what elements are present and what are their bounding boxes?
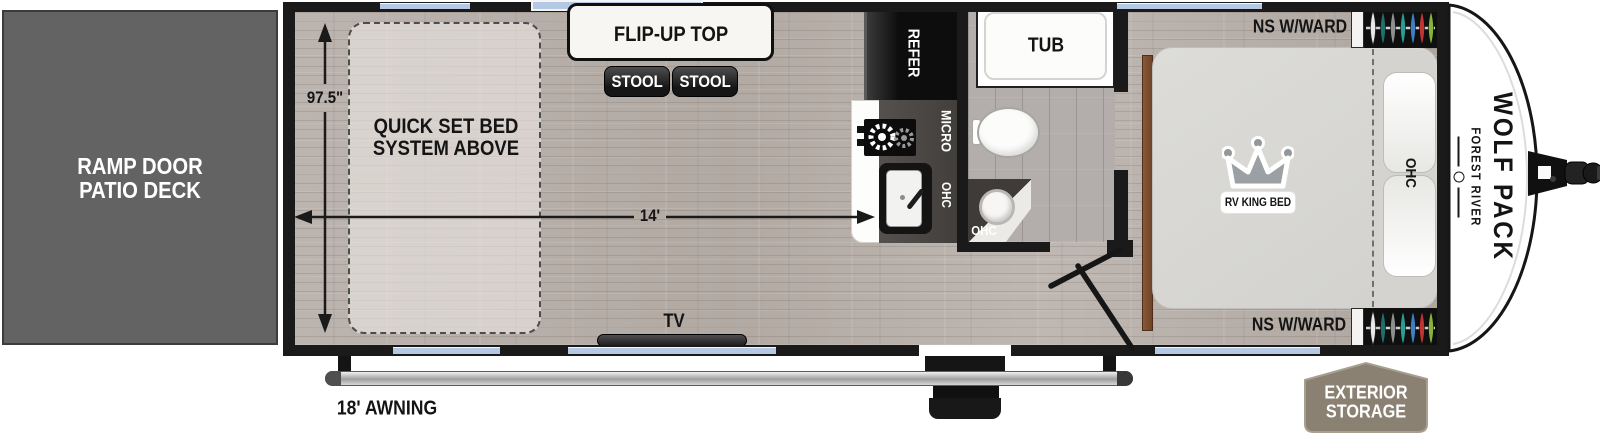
awning-bracket-right	[1103, 356, 1116, 372]
width-dimension-label: 97.5"	[307, 89, 343, 107]
king-bed-label: RV KING BED	[1225, 196, 1291, 208]
ramp-door-label: RAMP DOOR PATIO DECK	[77, 153, 203, 201]
king-bed-label-pill: RV KING BED	[1221, 192, 1295, 213]
stool-badge-2: STOOL	[672, 66, 738, 97]
top-window-1	[380, 3, 470, 9]
flip-up-top-box: FLIP-UP TOP	[567, 3, 774, 61]
trailer-right-wall	[1437, 2, 1449, 356]
vanity-sink-bowl	[979, 189, 1015, 225]
burner-icons	[864, 119, 916, 156]
bathtub: TUB	[976, 4, 1115, 88]
ramp-door-patio-deck: RAMP DOOR PATIO DECK	[2, 10, 278, 345]
quick-set-bed-area	[348, 22, 541, 334]
microwave-label: MICRO	[939, 110, 954, 152]
sink-drain	[900, 195, 905, 200]
stove	[864, 119, 916, 156]
flip-up-top-label: FLIP-UP TOP	[613, 24, 727, 46]
crown-icon	[1222, 136, 1294, 194]
kitchen-ohc-label: OHC	[939, 182, 953, 208]
ns-ward-label-top: NS W/WARD	[1253, 18, 1347, 37]
exterior-storage-label: EXTERIOR STORAGE	[1324, 383, 1407, 422]
quick-set-bed-label: QUICK SET BED SYSTEM ABOVE	[373, 116, 519, 160]
ns-ward-label-bottom: NS W/WARD	[1252, 316, 1346, 335]
kitchen-bath-wall	[957, 2, 968, 252]
hanger-icons	[1364, 308, 1437, 348]
forest-river-emblem	[1454, 137, 1465, 218]
toilet	[977, 107, 1040, 158]
bottom-window-1	[393, 347, 500, 354]
wardrobe-bottom	[1364, 308, 1437, 348]
wardrobe-top	[1364, 8, 1437, 48]
bathroom-bottom-wall	[957, 242, 1050, 252]
model-label: WOLF PACK	[1489, 92, 1517, 262]
top-window-2	[1117, 3, 1262, 9]
length-dimension-label: 14'	[640, 207, 660, 225]
floorplan-canvas: RAMP DOOR PATIO DECK QUICK SET BED SYSTE…	[0, 0, 1600, 440]
stool-label-1: STOOL	[611, 73, 662, 91]
pillow	[1383, 175, 1436, 277]
awning-end-cap-left	[325, 371, 341, 386]
bedroom-wall-lower	[1114, 170, 1128, 242]
awning-bracket-left	[338, 356, 351, 372]
nightstand-bottom	[1351, 308, 1364, 348]
brand-label: FOREST RIVER	[1468, 127, 1481, 226]
entry-door-opening	[919, 345, 1011, 356]
awning-label: 18' AWNING	[337, 399, 437, 420]
stool-label-2: STOOL	[679, 73, 730, 91]
entry-step-3	[929, 398, 1001, 419]
tv-label: TV	[663, 312, 684, 332]
stove-knobs	[857, 139, 864, 146]
bedroom-wall-upper	[1114, 12, 1128, 92]
bedroom-ohc-label: OHC	[1402, 158, 1418, 188]
bottom-window-2	[568, 347, 776, 354]
door-hinge-block	[1107, 240, 1133, 257]
hanger-icons	[1364, 8, 1437, 48]
kitchen-sink	[879, 163, 932, 234]
bath-ohc-label: OHC	[971, 224, 996, 238]
trailer-left-wall	[283, 2, 295, 356]
bathtub-label: TUB	[1027, 36, 1063, 57]
hitch	[1528, 151, 1600, 196]
awning-bar	[325, 371, 1133, 386]
stove-knobs	[857, 126, 864, 133]
refrigerator-label: REFER	[904, 29, 921, 78]
awning-end-cap-right	[1117, 371, 1133, 386]
nightstand-top	[1351, 8, 1364, 48]
bottom-window-3	[1155, 347, 1320, 354]
stool-badge-1: STOOL	[604, 66, 670, 97]
